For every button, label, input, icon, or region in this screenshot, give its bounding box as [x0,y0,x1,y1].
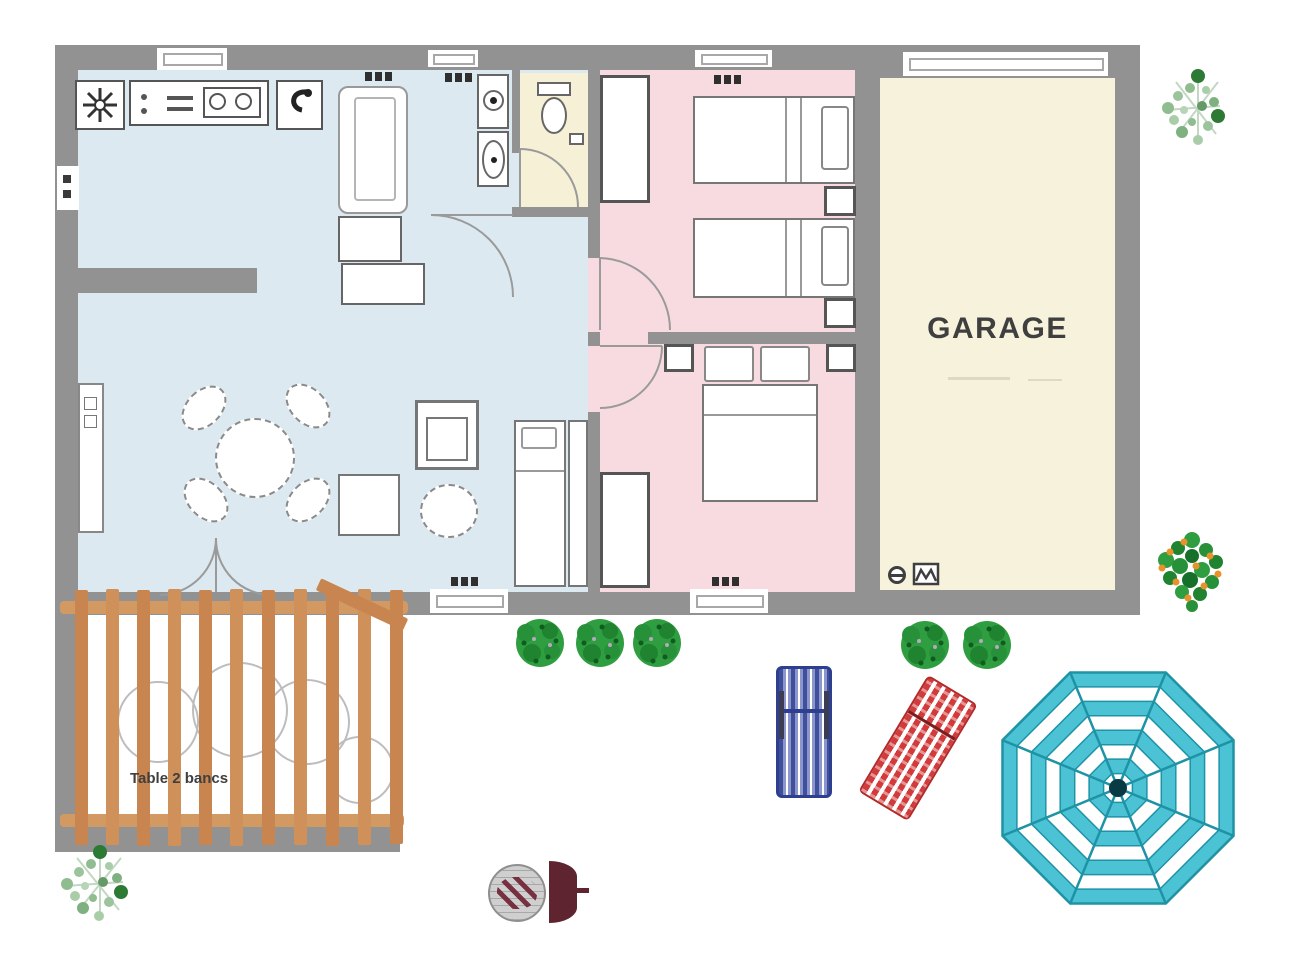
bush-icon [629,617,685,669]
pergola-label: Table 2 bancs [130,770,228,787]
french-door-arc [160,538,216,595]
parasol-icon [990,660,1246,916]
bbq-lid [549,861,577,923]
pergola-slat [199,590,212,845]
floor-plan: GARAGE [0,0,1290,964]
pergola-slat [358,589,371,845]
french-door-arc [216,538,272,595]
plant-icon [45,840,155,935]
door-arc-bedroom1 [600,258,670,330]
bbq-lid-handle [576,888,589,893]
bush-icon [512,617,568,669]
door-arc-bedroom2 [600,346,662,408]
pergola-slat [168,589,181,846]
pergola-slat [326,590,339,846]
pergola-slat [294,589,307,845]
pergola-slat [230,589,243,846]
pergola-slat [106,589,119,845]
bush-icon [572,617,628,669]
door-arc-bathroom [520,149,578,207]
pergola-slat [137,590,150,846]
lounger-blue [776,666,832,798]
plant-icon [1148,62,1248,162]
pergola-slat [262,590,275,845]
door-arc-hall [431,215,513,297]
orange-tree-icon [1140,528,1250,628]
bush-icon [897,619,953,671]
pergola-slat [75,590,88,845]
bbq-icon [488,864,546,922]
